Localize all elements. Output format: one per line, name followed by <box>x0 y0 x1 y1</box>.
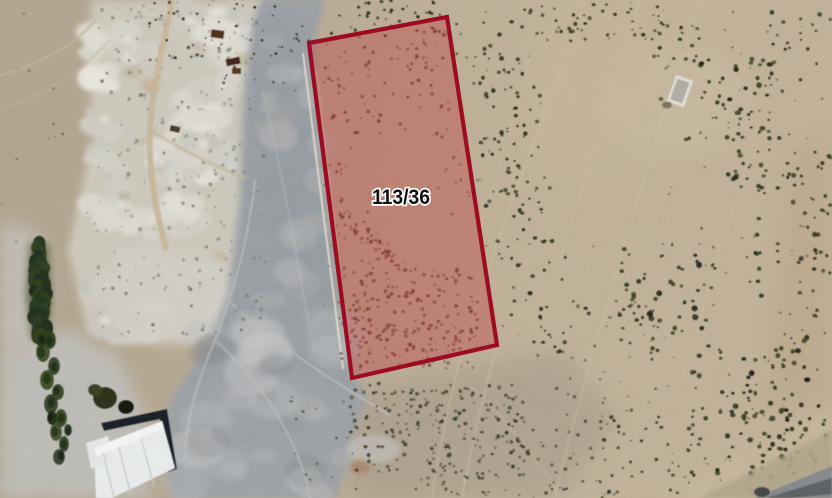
svg-text:113/36: 113/36 <box>372 185 430 209</box>
